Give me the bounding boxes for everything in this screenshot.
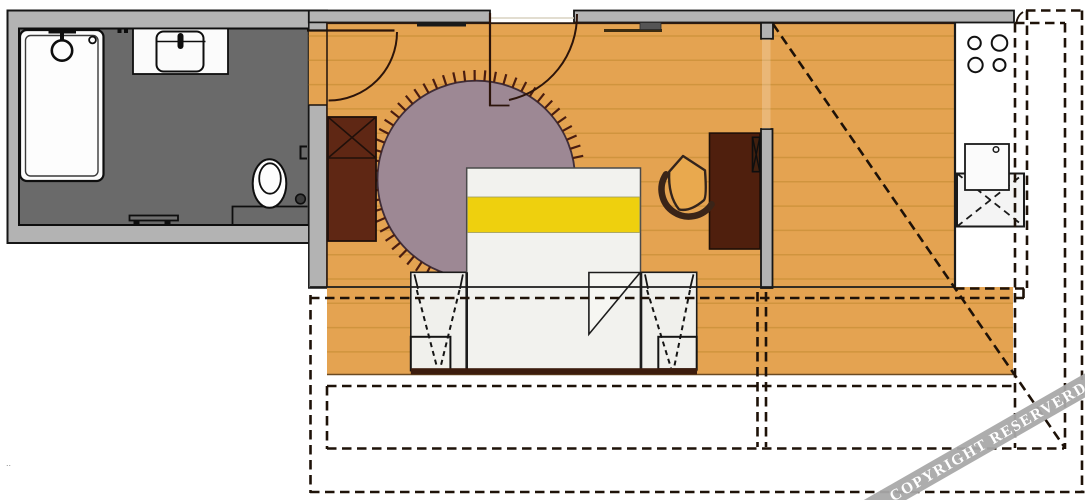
svg-text:..: ..	[6, 458, 11, 468]
